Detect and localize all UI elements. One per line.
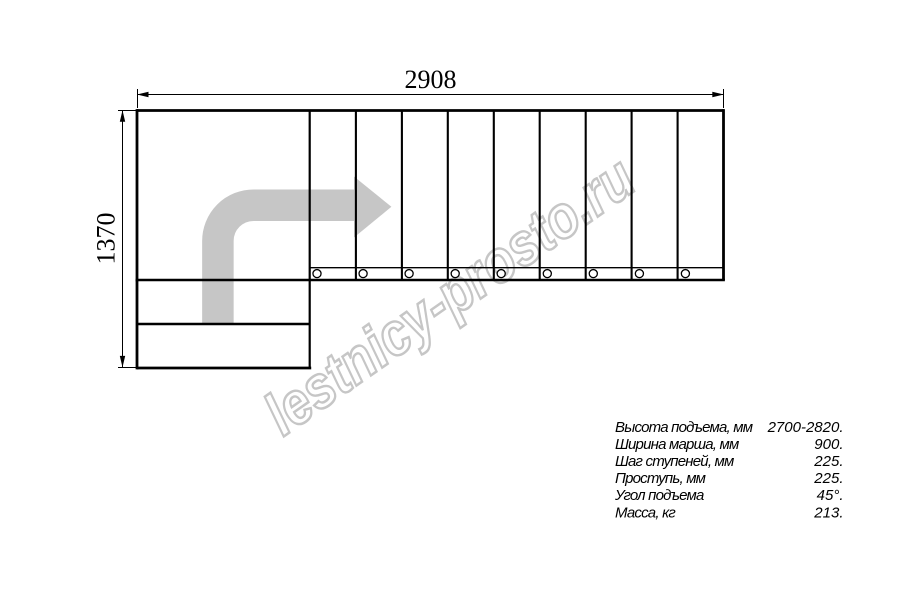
svg-text:900.: 900. — [814, 436, 843, 453]
svg-text:213.: 213. — [813, 504, 843, 521]
svg-text:1370: 1370 — [92, 213, 121, 265]
svg-text:45°.: 45°. — [817, 487, 844, 504]
svg-text:Высота подъема, мм: Высота подъема, мм — [615, 419, 753, 436]
svg-text:Проступь, мм: Проступь, мм — [615, 470, 706, 487]
svg-text:225.: 225. — [813, 453, 843, 470]
svg-text:Угол подъема: Угол подъема — [614, 487, 704, 504]
svg-text:2700-2820.: 2700-2820. — [767, 419, 844, 436]
svg-text:2908: 2908 — [405, 65, 457, 94]
svg-text:Ширина марша, мм: Ширина марша, мм — [615, 436, 739, 453]
svg-text:Шаг ступеней, мм: Шаг ступеней, мм — [615, 453, 734, 470]
svg-text:Масса, кг: Масса, кг — [615, 504, 676, 521]
svg-text:225.: 225. — [813, 470, 843, 487]
